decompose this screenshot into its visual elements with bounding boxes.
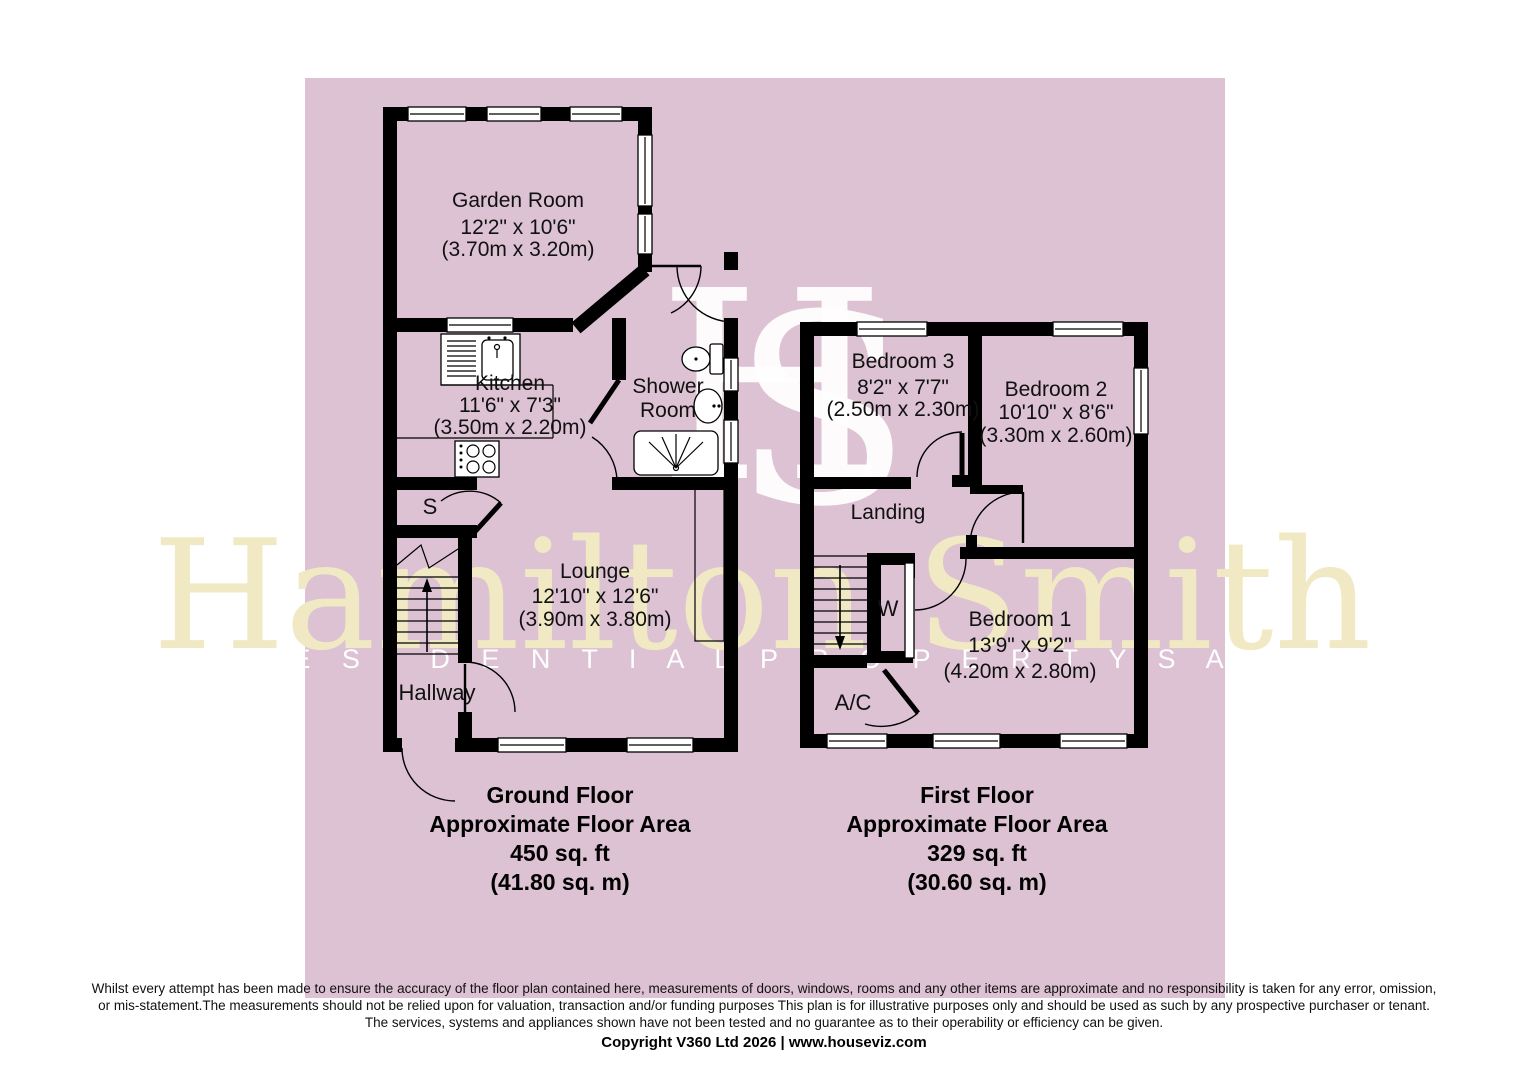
lounge-label: Lounge bbox=[560, 560, 630, 583]
bedroom2-window bbox=[1053, 322, 1123, 336]
bedroom2-side-window bbox=[1134, 368, 1148, 434]
landing-label: Landing bbox=[851, 501, 926, 524]
footer: Whilst every attempt has been made to en… bbox=[92, 981, 1437, 1051]
shower-room-window bbox=[724, 358, 738, 391]
first-floor-rear-window bbox=[827, 734, 887, 748]
garden-room-window bbox=[570, 107, 622, 121]
kitchen-dim-metric: (3.50m x 2.20m) bbox=[434, 416, 587, 439]
lounge-window bbox=[627, 738, 693, 752]
disclaimer-line-3: The services, systems and appliances sho… bbox=[365, 1015, 1163, 1030]
bedroom1-dim-imperial: 13'9" x 9'2" bbox=[968, 634, 1072, 657]
bedroom3-window bbox=[857, 322, 927, 336]
copyright-line: Copyright V360 Ltd 2026 | www.houseviz.c… bbox=[601, 1034, 926, 1051]
lounge-window bbox=[498, 738, 566, 752]
bedroom1-dim-metric: (4.20m x 2.80m) bbox=[944, 660, 1097, 683]
kitchen-label: Kitchen bbox=[475, 372, 545, 395]
ground-floor-area-imperial: 450 sq. ft bbox=[510, 840, 610, 866]
kitchen-dim-imperial: 11'6" x 7'3" bbox=[459, 394, 561, 417]
bedroom2-dim-metric: (3.30m x 2.60m) bbox=[980, 424, 1133, 447]
shower-room-window bbox=[724, 420, 738, 463]
first-floor-area-label: Approximate Floor Area bbox=[846, 811, 1107, 837]
garden-room-dim-metric: (3.70m x 3.20m) bbox=[442, 238, 595, 261]
garden-room-window bbox=[408, 107, 466, 121]
hallway-label: Hallway bbox=[398, 680, 475, 705]
disclaimer-line-2: or mis-statement.The measurements should… bbox=[98, 998, 1430, 1013]
bedroom3-label: Bedroom 3 bbox=[852, 350, 955, 373]
toilet-icon bbox=[682, 344, 723, 374]
garden-room-side-window bbox=[638, 135, 652, 206]
airing-cupboard-label: A/C bbox=[835, 690, 872, 715]
first-floor-area-metric: (30.60 sq. m) bbox=[907, 869, 1046, 895]
wardrobe-label: W bbox=[878, 596, 899, 621]
ground-floor-area-label: Approximate Floor Area bbox=[429, 811, 690, 837]
wardrobe-door bbox=[905, 563, 914, 658]
garden-room-dim-imperial: 12'2" x 10'6" bbox=[460, 216, 575, 239]
bedroom1-window bbox=[933, 734, 1000, 748]
store-label: S bbox=[423, 494, 438, 519]
lounge-dim-imperial: 12'10" x 12'6" bbox=[532, 585, 659, 608]
garden-room-window bbox=[487, 107, 541, 121]
bedroom1-window bbox=[1060, 734, 1127, 748]
bedroom1-label: Bedroom 1 bbox=[969, 608, 1072, 631]
floorplan-image: H S Hamilton Smith R E S I D E N T I A L… bbox=[0, 0, 1528, 1080]
bedroom3-dim-metric: (2.50m x 2.30m) bbox=[827, 398, 980, 421]
kitchen-hob-icon bbox=[455, 441, 499, 477]
floorplan-page: H S Hamilton Smith R E S I D E N T I A L… bbox=[0, 0, 1528, 1080]
disclaimer-line-1: Whilst every attempt has been made to en… bbox=[92, 981, 1437, 996]
ground-floor-area-metric: (41.80 sq. m) bbox=[490, 869, 629, 895]
shower-tray-icon bbox=[634, 431, 718, 475]
first-floor-area-imperial: 329 sq. ft bbox=[927, 840, 1027, 866]
kitchen-window bbox=[447, 318, 513, 332]
shower-room-label-line2: Room bbox=[640, 399, 696, 422]
bedroom2-dim-imperial: 10'10" x 8'6" bbox=[998, 401, 1113, 424]
garden-room-label: Garden Room bbox=[452, 189, 584, 212]
lounge-dim-metric: (3.90m x 3.80m) bbox=[519, 608, 672, 631]
garden-room-side-window bbox=[638, 214, 652, 254]
shower-room-label-line1: Shower bbox=[632, 375, 703, 398]
ground-floor-title: Ground Floor bbox=[487, 782, 634, 808]
bedroom2-label: Bedroom 2 bbox=[1005, 378, 1108, 401]
bedroom3-dim-imperial: 8'2" x 7'7" bbox=[857, 376, 949, 399]
first-floor-title: First Floor bbox=[920, 782, 1034, 808]
